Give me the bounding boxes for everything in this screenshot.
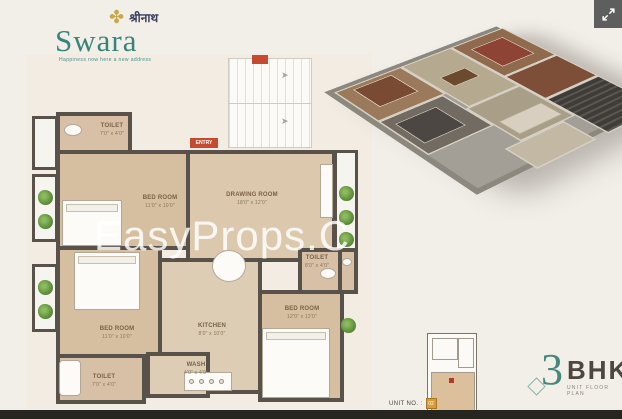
watermark: EasyProps.C <box>94 212 350 260</box>
iso-dining-table <box>440 68 480 87</box>
stove-burner-icon <box>209 379 214 384</box>
bed <box>74 252 140 310</box>
stair-arrow-icon: ➤ <box>281 71 289 80</box>
bhk-block: 3 BHK UNIT FLOOR PLAN <box>541 348 622 397</box>
room-label-kitchen: KITCHEN8'0" x 10'0" <box>182 323 242 337</box>
room-label-toilet-bottom: TOILET7'0" x 4'0" <box>74 374 134 388</box>
render-3d-base <box>324 26 622 194</box>
entry-label-text: ENTRY <box>196 140 213 146</box>
key-plan-unit-marker <box>449 378 454 383</box>
stair-arrow-icon: ➤ <box>281 117 289 126</box>
bottom-edge <box>0 410 622 419</box>
logo: ✤ श्रीनाथ Swara Happiness now here a new… <box>55 8 215 63</box>
bhk-subtitle: UNIT FLOOR PLAN <box>567 385 622 397</box>
bhk-number: 3 <box>541 348 563 392</box>
plant-icon <box>38 214 53 229</box>
iso-bed <box>471 37 534 66</box>
iso-bed <box>395 107 466 144</box>
logo-brand: Swara <box>55 26 215 55</box>
fullscreen-button[interactable] <box>594 0 622 28</box>
room-label-drawing: DRAWING ROOM18'0" x 12'0" <box>217 192 287 206</box>
plant-icon <box>341 318 356 333</box>
balcony-left-2 <box>32 264 58 332</box>
iso-bed <box>353 75 418 107</box>
bhk-text: BHK <box>567 357 622 383</box>
entry-label: ENTRY <box>190 138 218 148</box>
room-label-bedroom-right: BED ROOM12'0" x 12'0" <box>272 306 332 320</box>
bed <box>262 328 330 398</box>
logo-tagline: Happiness now here a new address <box>59 57 215 63</box>
sofa <box>320 164 333 218</box>
plant-icon <box>38 280 53 295</box>
plant-icon <box>38 190 53 205</box>
listing-image: ✤ श्रीनाथ Swara Happiness now here a new… <box>0 0 622 419</box>
plant-icon <box>38 304 53 319</box>
render-3d <box>356 0 622 346</box>
unit-no-badge: 02 <box>426 398 437 409</box>
room-label-bedroom-top: BED ROOM11'0" x 10'0" <box>130 195 190 209</box>
room-label-wash: WASH4'0" x 4'0" <box>171 362 221 376</box>
balcony-left-1 <box>32 174 58 242</box>
room-label-toilet-top: TOILET7'0" x 4'0" <box>82 123 142 137</box>
stove-burner-icon <box>189 379 194 384</box>
toilet-fixture <box>320 268 336 279</box>
sitout-top-left <box>32 116 58 170</box>
stove-burner-icon <box>199 379 204 384</box>
toilet-fixture <box>64 124 82 136</box>
key-plan-room <box>458 338 474 368</box>
room-label-bedroom-left: BED ROOM11'0" x 10'0" <box>87 326 147 340</box>
stair-marker <box>252 55 268 64</box>
key-plan-room <box>432 338 458 360</box>
expand-icon <box>601 7 616 22</box>
unit-no-label: UNIT NO. : <box>389 401 423 407</box>
unit-no-row: UNIT NO. : 02 <box>389 398 437 409</box>
stair-landing-line <box>229 103 311 104</box>
stove-burner-icon <box>219 379 224 384</box>
staircase: ➤ ➤ <box>228 58 312 148</box>
plant-icon <box>339 186 354 201</box>
